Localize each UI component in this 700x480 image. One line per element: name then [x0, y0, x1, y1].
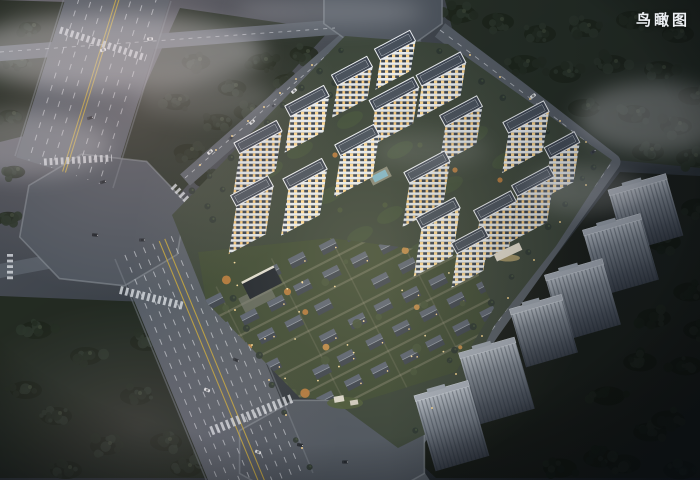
atmosphere	[0, 0, 700, 480]
aerial-view-label: 鸟瞰图	[636, 9, 690, 30]
aerial-render-image: 鸟瞰图	[0, 0, 700, 480]
render-scene	[0, 0, 700, 480]
